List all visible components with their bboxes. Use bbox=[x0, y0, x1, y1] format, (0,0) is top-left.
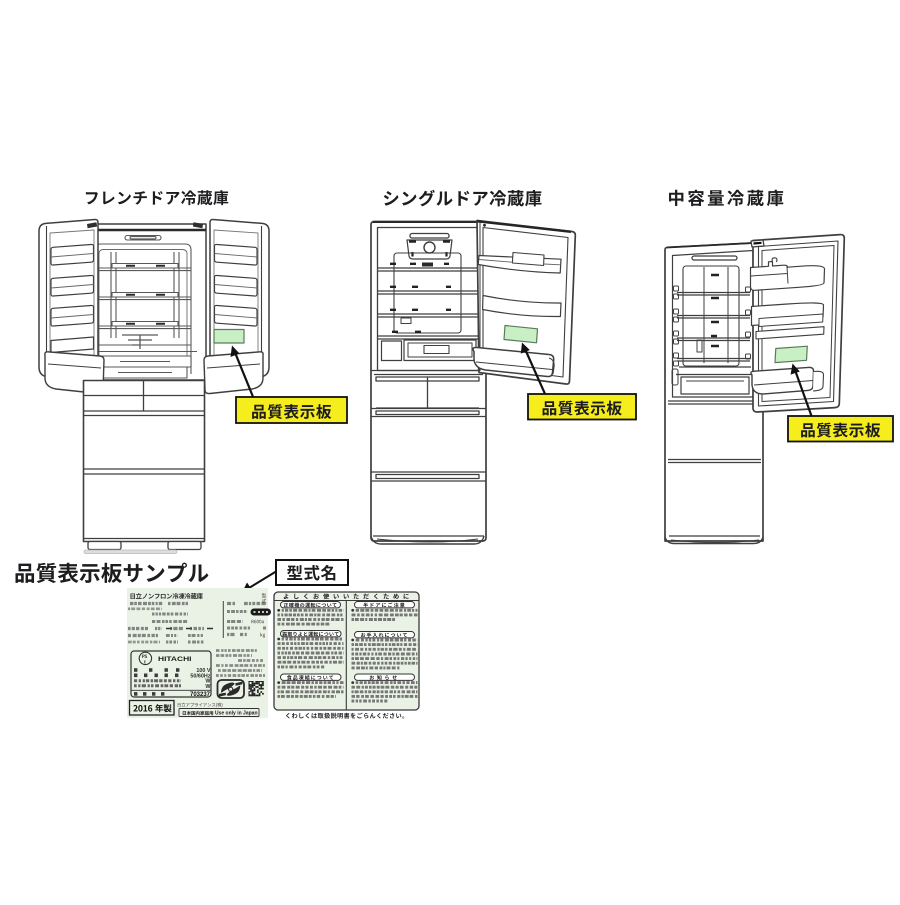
svg-text:703237: 703237 bbox=[190, 692, 211, 698]
svg-text:HITACHI: HITACHI bbox=[158, 656, 192, 663]
svg-text:Use only in Japan: Use only in Japan bbox=[215, 711, 258, 717]
